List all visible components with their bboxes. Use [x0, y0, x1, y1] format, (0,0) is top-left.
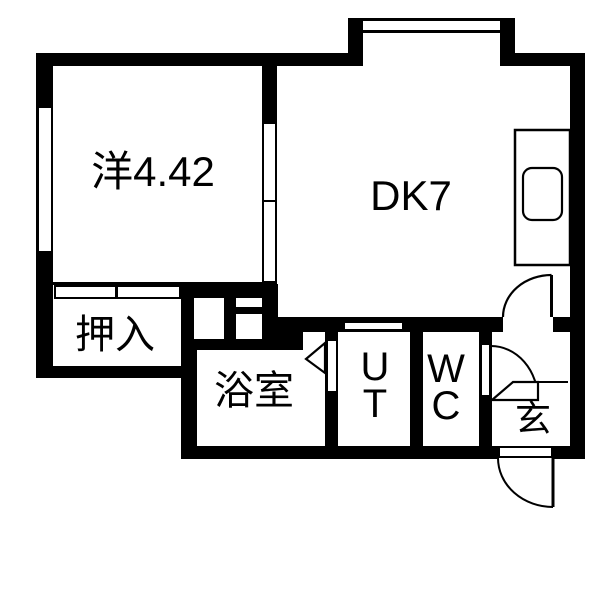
room-label-toilet-line2: C: [427, 388, 465, 425]
room-label-closet: 押入: [75, 315, 155, 355]
room-label-dk: DK7: [370, 175, 452, 217]
room-label-western: 洋4.42: [91, 151, 215, 193]
room-label-entrance: 玄: [515, 401, 551, 437]
fixtures-layer: [0, 0, 600, 600]
room-label-utility-line1: U: [361, 349, 390, 386]
floor-plan: 洋4.42 DK7 押入 浴室 U T W C 玄: [0, 0, 600, 600]
bath-door-triangle: [306, 343, 325, 373]
room-label-toilet-line1: W: [427, 351, 465, 388]
bath-door-leaf: [327, 340, 337, 392]
kitchen-sink: [523, 168, 562, 220]
room-label-bath: 浴室: [214, 371, 294, 411]
room-label-utility-line2: T: [361, 386, 390, 423]
room-label-toilet: W C: [427, 351, 465, 425]
room-label-utility: U T: [361, 349, 390, 423]
entrance-door-swing-arc: [498, 458, 553, 507]
dk-door-swing-arc: [503, 275, 552, 317]
